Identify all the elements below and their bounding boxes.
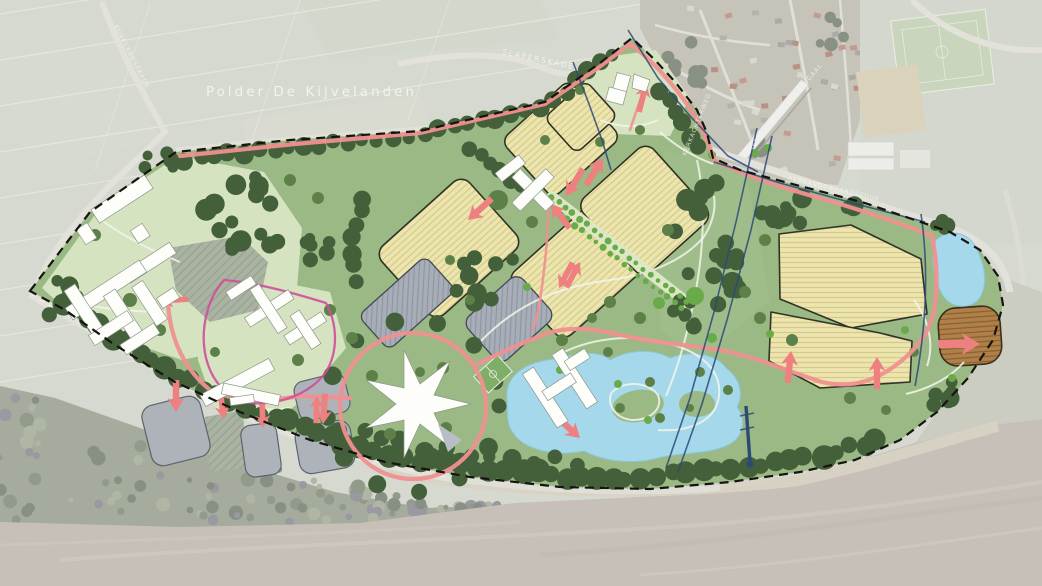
site-plan-svg: Polder De Kijvelanden SLAPERSKADE KIJVEL… <box>0 0 1042 586</box>
masterplan-map: Polder De Kijvelanden SLAPERSKADE KIJVEL… <box>0 0 1042 586</box>
polder-area-label: Polder De Kijvelanden <box>206 84 417 100</box>
hatched-parking-zone <box>205 410 246 472</box>
brown-parcel <box>937 305 1003 367</box>
parking-lot <box>240 422 283 479</box>
